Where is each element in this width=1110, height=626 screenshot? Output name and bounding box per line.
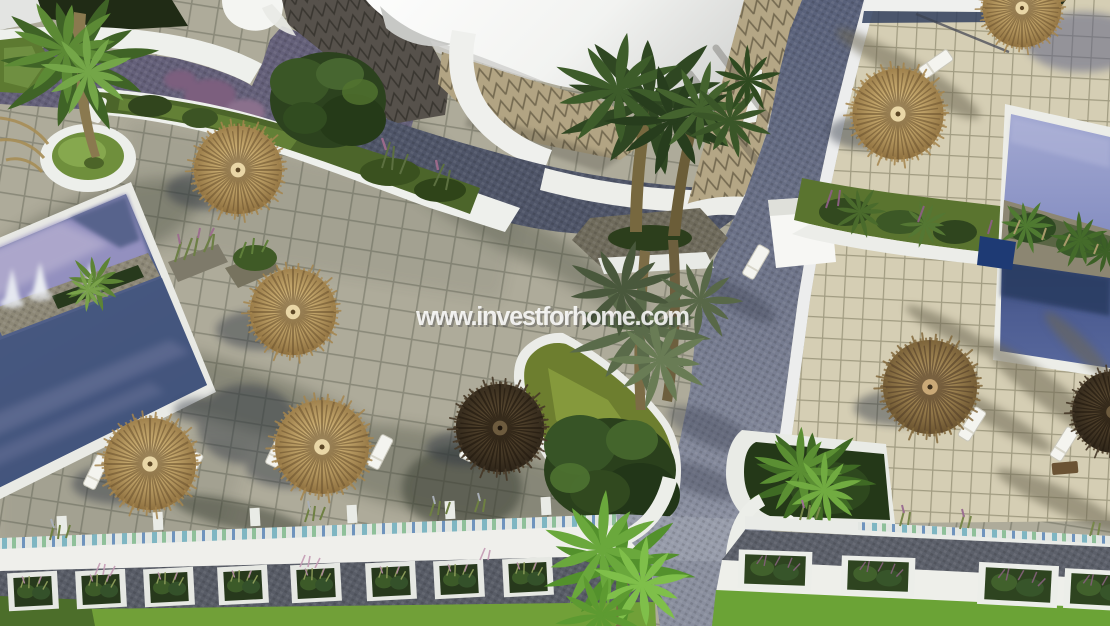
svg-text:www.investforhome.com: www.investforhome.com — [415, 303, 690, 331]
